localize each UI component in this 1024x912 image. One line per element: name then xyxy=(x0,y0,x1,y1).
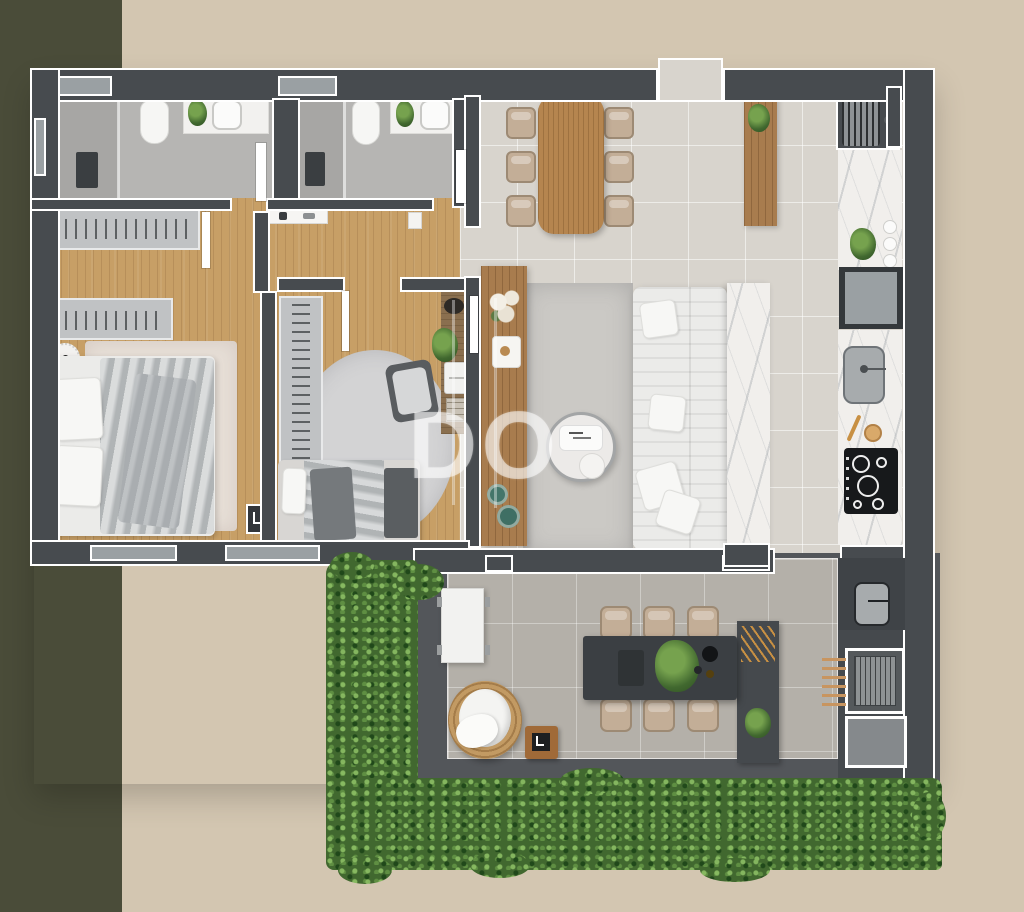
kitchen-sink xyxy=(843,346,885,404)
kitchen-faucet-dot-icon xyxy=(860,365,868,373)
terrace-chair-3 xyxy=(687,606,719,640)
shower-fixture-2-icon xyxy=(305,152,325,186)
dining-chair-4 xyxy=(604,107,634,139)
wall-bedroom2-top-a xyxy=(277,277,345,292)
table-board-icon xyxy=(618,650,644,686)
door-leaf-living xyxy=(470,296,478,353)
hedge-tuft-7 xyxy=(470,852,530,878)
wall-corridor-living-top xyxy=(464,95,481,228)
door-leaf-bath-1 xyxy=(256,143,266,201)
door-leaf-bedroom2 xyxy=(342,291,349,351)
sink-1 xyxy=(212,100,242,130)
floor-plan-canvas: DO xyxy=(0,0,1024,912)
hedge-tuft-4 xyxy=(560,768,624,794)
hedge-tuft-1 xyxy=(330,552,374,580)
grill-unit xyxy=(845,648,905,714)
sideboard-flowers-icon xyxy=(485,286,523,326)
bedroom2-pillow xyxy=(281,468,307,515)
table-cup-1-icon xyxy=(694,666,702,674)
master-wardrobe-top xyxy=(47,205,200,250)
dining-table xyxy=(538,96,604,234)
sliding-door-panel-1 xyxy=(485,555,513,572)
fridge xyxy=(839,267,903,329)
dining-chair-2 xyxy=(506,151,536,183)
toilet-1 xyxy=(140,100,169,144)
terrace-chair-1 xyxy=(600,606,632,640)
table-centerpiece-plant xyxy=(655,640,699,692)
hedge-bottom xyxy=(350,778,942,870)
gold-plate-icon xyxy=(864,424,882,442)
window-bedroom2-bottom xyxy=(225,545,320,561)
window-left-wall xyxy=(34,118,46,176)
terrace-white-table xyxy=(441,588,484,663)
hedge-tuft-5 xyxy=(912,792,946,840)
table-cup-2-icon xyxy=(706,670,714,678)
sideboard-plate-2 xyxy=(497,505,520,528)
shower-glass-1 xyxy=(117,102,120,204)
master-wardrobe-left xyxy=(47,298,173,340)
cooktop xyxy=(844,448,898,514)
platform-skewers-icon xyxy=(741,626,775,662)
window-kitchen-right xyxy=(886,86,902,148)
master-pillow-2 xyxy=(52,445,103,507)
hedge-tuft-6 xyxy=(700,858,770,882)
dining-chair-6 xyxy=(604,195,634,227)
terrace-sink xyxy=(854,582,890,626)
kitchen-jar-2 xyxy=(883,237,897,251)
terrace-chair-4 xyxy=(600,698,632,732)
dining-console-plant xyxy=(748,104,770,132)
bedroom2-throw xyxy=(310,467,357,542)
dining-chair-1 xyxy=(506,107,536,139)
terrace-chair-6 xyxy=(687,698,719,732)
kitchen-jar-1 xyxy=(883,220,897,234)
wall-bath-bottom-b xyxy=(266,198,434,211)
marble-panel-base xyxy=(723,543,770,567)
sofa xyxy=(633,287,727,550)
washer-icon xyxy=(842,96,880,146)
shower-fixture-1-icon xyxy=(76,152,98,188)
grill-skewers-icon xyxy=(822,654,846,706)
terrace-side-table xyxy=(525,726,558,759)
dining-chair-5 xyxy=(604,151,634,183)
door-leaf-master xyxy=(202,212,210,268)
wall-bedroom2-top-b xyxy=(400,277,466,292)
platform-plant xyxy=(745,708,771,738)
terrace-faucet-icon xyxy=(868,600,888,602)
hedge-tuft-2 xyxy=(396,564,444,600)
corridor-shelf-small xyxy=(408,212,422,229)
wall-bath-bottom-a xyxy=(30,198,232,211)
wall-top-left xyxy=(30,68,658,102)
wall-bath-divider xyxy=(272,98,300,208)
hedge-tuft-3 xyxy=(338,856,392,884)
sink-2 xyxy=(420,100,450,130)
toilet-2 xyxy=(352,100,380,145)
window-master-bottom xyxy=(90,545,177,561)
entry-recess xyxy=(658,58,723,102)
marble-panel xyxy=(727,283,770,543)
window-bath-2 xyxy=(278,76,337,96)
door-leaf-bath-2 xyxy=(456,150,466,203)
terrace-cabinet xyxy=(845,716,907,768)
watermark-label: DO xyxy=(408,392,560,499)
master-pillow-1 xyxy=(52,377,103,441)
rattan-chair xyxy=(448,681,522,759)
terrace-chair-5 xyxy=(643,698,675,732)
wall-master-right-stub xyxy=(253,211,270,293)
watermark-text: DO xyxy=(408,398,560,494)
kitchen-plant xyxy=(850,228,876,260)
kitchen-jar-3 xyxy=(883,254,897,268)
wall-living-bottom xyxy=(413,548,775,574)
dining-chair-3 xyxy=(506,195,536,227)
wall-bedroom-divider xyxy=(260,291,277,548)
plant-bath-1 xyxy=(188,100,207,126)
plant-bath-2 xyxy=(396,101,414,127)
wall-right xyxy=(903,68,935,792)
table-kettle-icon xyxy=(702,646,718,662)
shower-glass-2 xyxy=(343,102,346,204)
terrace-chair-2 xyxy=(643,606,675,640)
